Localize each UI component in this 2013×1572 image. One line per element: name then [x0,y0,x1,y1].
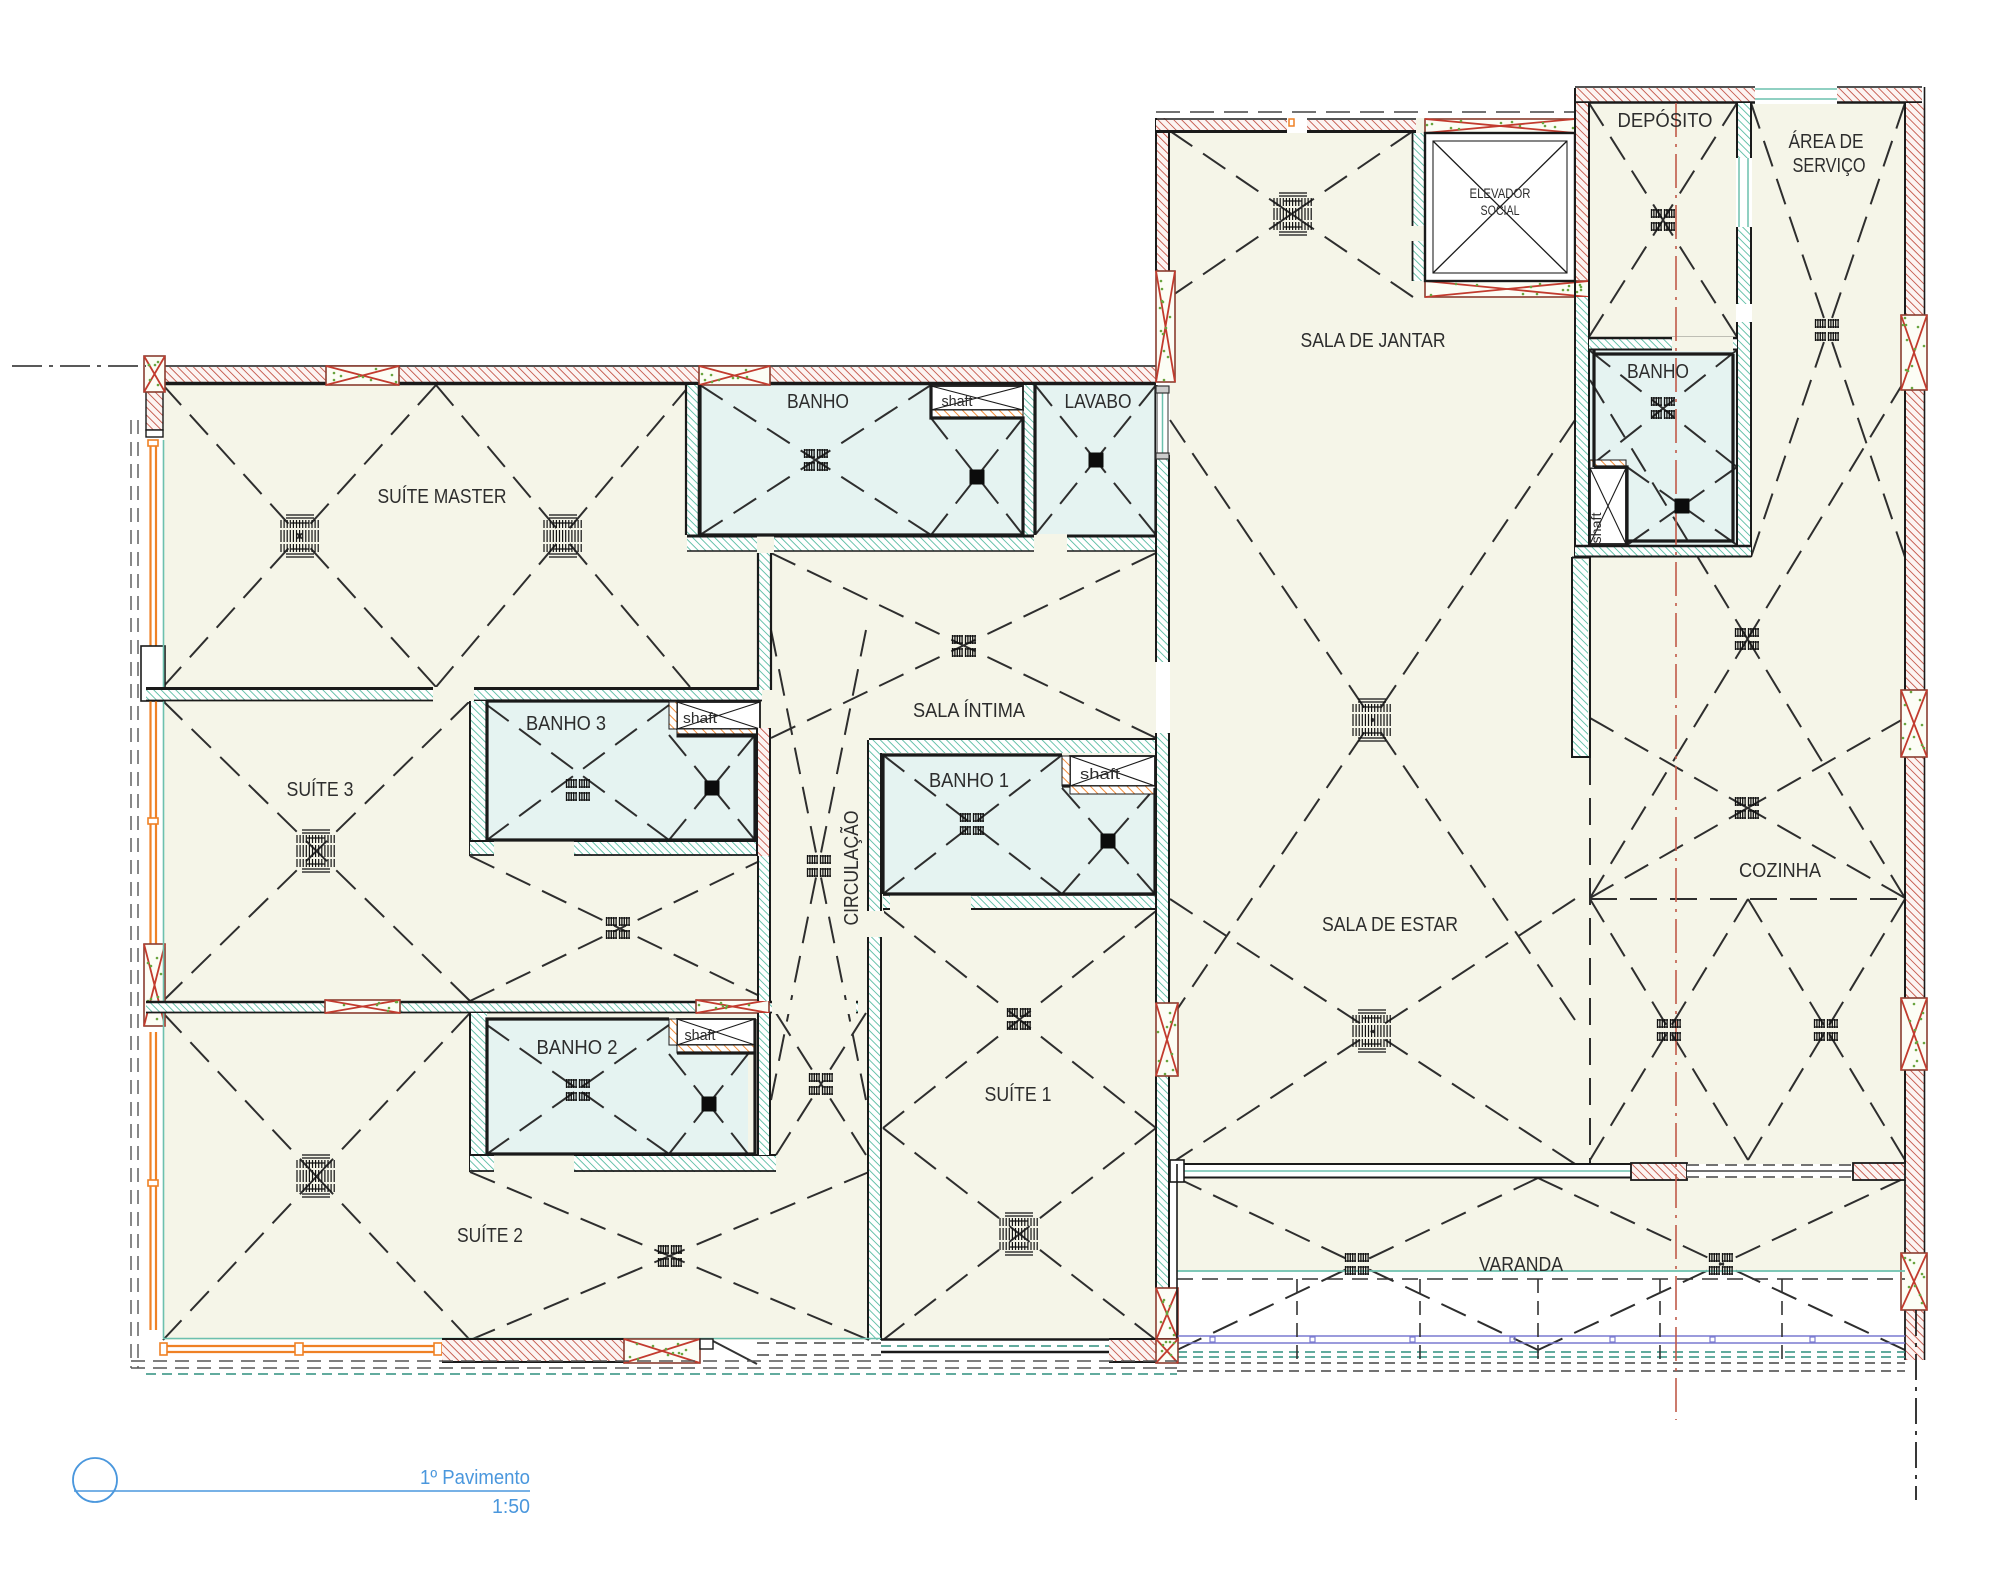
svg-text:SERVIÇO: SERVIÇO [1793,154,1866,177]
svg-text:1:50: 1:50 [492,1495,530,1518]
svg-text:ÁREA DE: ÁREA DE [1789,130,1864,153]
svg-text:ELEVADOR: ELEVADOR [1470,186,1531,201]
svg-text:COZINHA: COZINHA [1739,859,1821,882]
svg-text:LAVABO: LAVABO [1065,390,1132,413]
svg-text:DEPÓSITO: DEPÓSITO [1618,109,1713,132]
svg-text:SUÍTE 3: SUÍTE 3 [287,778,354,801]
svg-text:SALA DE JANTAR: SALA DE JANTAR [1301,329,1446,352]
svg-text:SALA ÍNTIMA: SALA ÍNTIMA [913,699,1025,722]
svg-text:SUÍTE MASTER: SUÍTE MASTER [378,485,507,508]
svg-text:shaft: shaft [683,710,718,727]
svg-text:shaft: shaft [685,1027,717,1044]
svg-text:1º Pavimento: 1º Pavimento [420,1466,530,1489]
svg-text:BANHO 3: BANHO 3 [526,712,606,735]
svg-text:BANHO: BANHO [1627,360,1689,383]
svg-text:SALA DE ESTAR: SALA DE ESTAR [1322,913,1458,936]
svg-text:BANHO 1: BANHO 1 [929,769,1009,792]
svg-text:SOCIAL: SOCIAL [1481,203,1520,218]
svg-text:shaft: shaft [942,393,974,410]
svg-text:CIRCULAÇÃO: CIRCULAÇÃO [840,811,863,926]
svg-text:shaft: shaft [1588,512,1604,543]
svg-text:SUÍTE 2: SUÍTE 2 [457,1224,523,1247]
svg-text:BANHO: BANHO [787,390,849,413]
svg-text:shaft: shaft [1080,766,1121,783]
svg-text:VARANDA: VARANDA [1479,1253,1563,1276]
svg-text:SUÍTE 1: SUÍTE 1 [985,1083,1052,1106]
svg-text:BANHO 2: BANHO 2 [537,1036,618,1059]
